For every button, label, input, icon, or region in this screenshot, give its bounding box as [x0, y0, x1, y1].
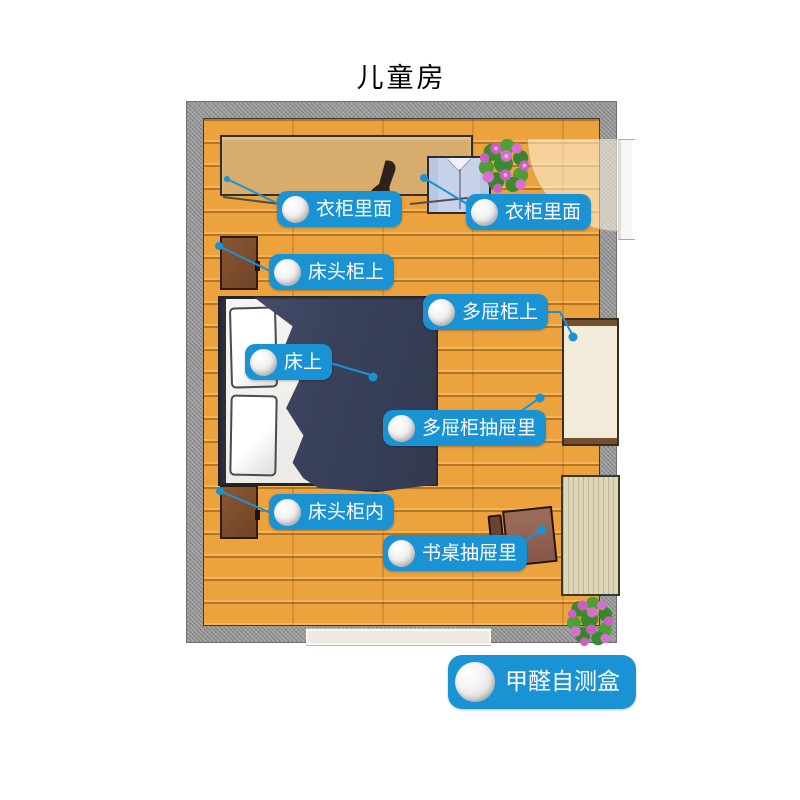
wardrobe	[220, 135, 473, 196]
test-box-icon	[388, 540, 415, 567]
test-box-icon	[455, 662, 495, 702]
legend-label: 甲醛自测盒	[505, 671, 620, 694]
test-box-icon	[250, 349, 277, 376]
marker-wardrobe-right[interactable]: 衣柜里面	[466, 194, 591, 230]
marker-label: 床头柜上	[308, 263, 384, 282]
desk	[561, 475, 620, 596]
floorplan-canvas: 儿童房	[0, 0, 800, 800]
marker-label: 床上	[284, 353, 322, 372]
test-box-icon	[428, 299, 455, 326]
test-box-icon	[274, 499, 301, 526]
window-opening	[306, 628, 491, 646]
potted-plant-icon	[475, 137, 532, 194]
marker-dresser-drawer[interactable]: 多屉柜抽屉里	[383, 410, 546, 446]
legend-test-box: 甲醛自测盒	[448, 655, 636, 709]
test-box-icon	[282, 196, 309, 223]
marker-nightstand-inside[interactable]: 床头柜内	[269, 494, 394, 530]
multi-drawer-cabinet	[562, 318, 619, 446]
pillow	[229, 395, 277, 477]
potted-plant-icon	[562, 595, 617, 647]
marker-label: 衣柜里面	[316, 200, 392, 219]
marker-label: 多屉柜上	[462, 303, 538, 322]
page-title: 儿童房	[186, 56, 617, 95]
door-opening	[618, 139, 635, 240]
marker-label: 书桌抽屉里	[422, 544, 517, 563]
test-box-icon	[388, 415, 415, 442]
nightstand-bottom-left	[220, 485, 258, 539]
marker-bed[interactable]: 床上	[245, 344, 332, 380]
marker-desk-drawer[interactable]: 书桌抽屉里	[383, 535, 527, 571]
bed	[218, 296, 438, 486]
marker-label: 多屉柜抽屉里	[422, 419, 536, 438]
marker-dresser-top[interactable]: 多屉柜上	[423, 294, 548, 330]
marker-label: 衣柜里面	[505, 203, 581, 222]
test-box-icon	[471, 199, 498, 226]
shirt-placket	[459, 169, 461, 209]
test-box-icon	[274, 259, 301, 286]
marker-label: 床头柜内	[308, 503, 384, 522]
marker-wardrobe-left[interactable]: 衣柜里面	[277, 191, 402, 227]
nightstand-top-left	[220, 236, 258, 290]
marker-nightstand-top[interactable]: 床头柜上	[269, 254, 394, 290]
